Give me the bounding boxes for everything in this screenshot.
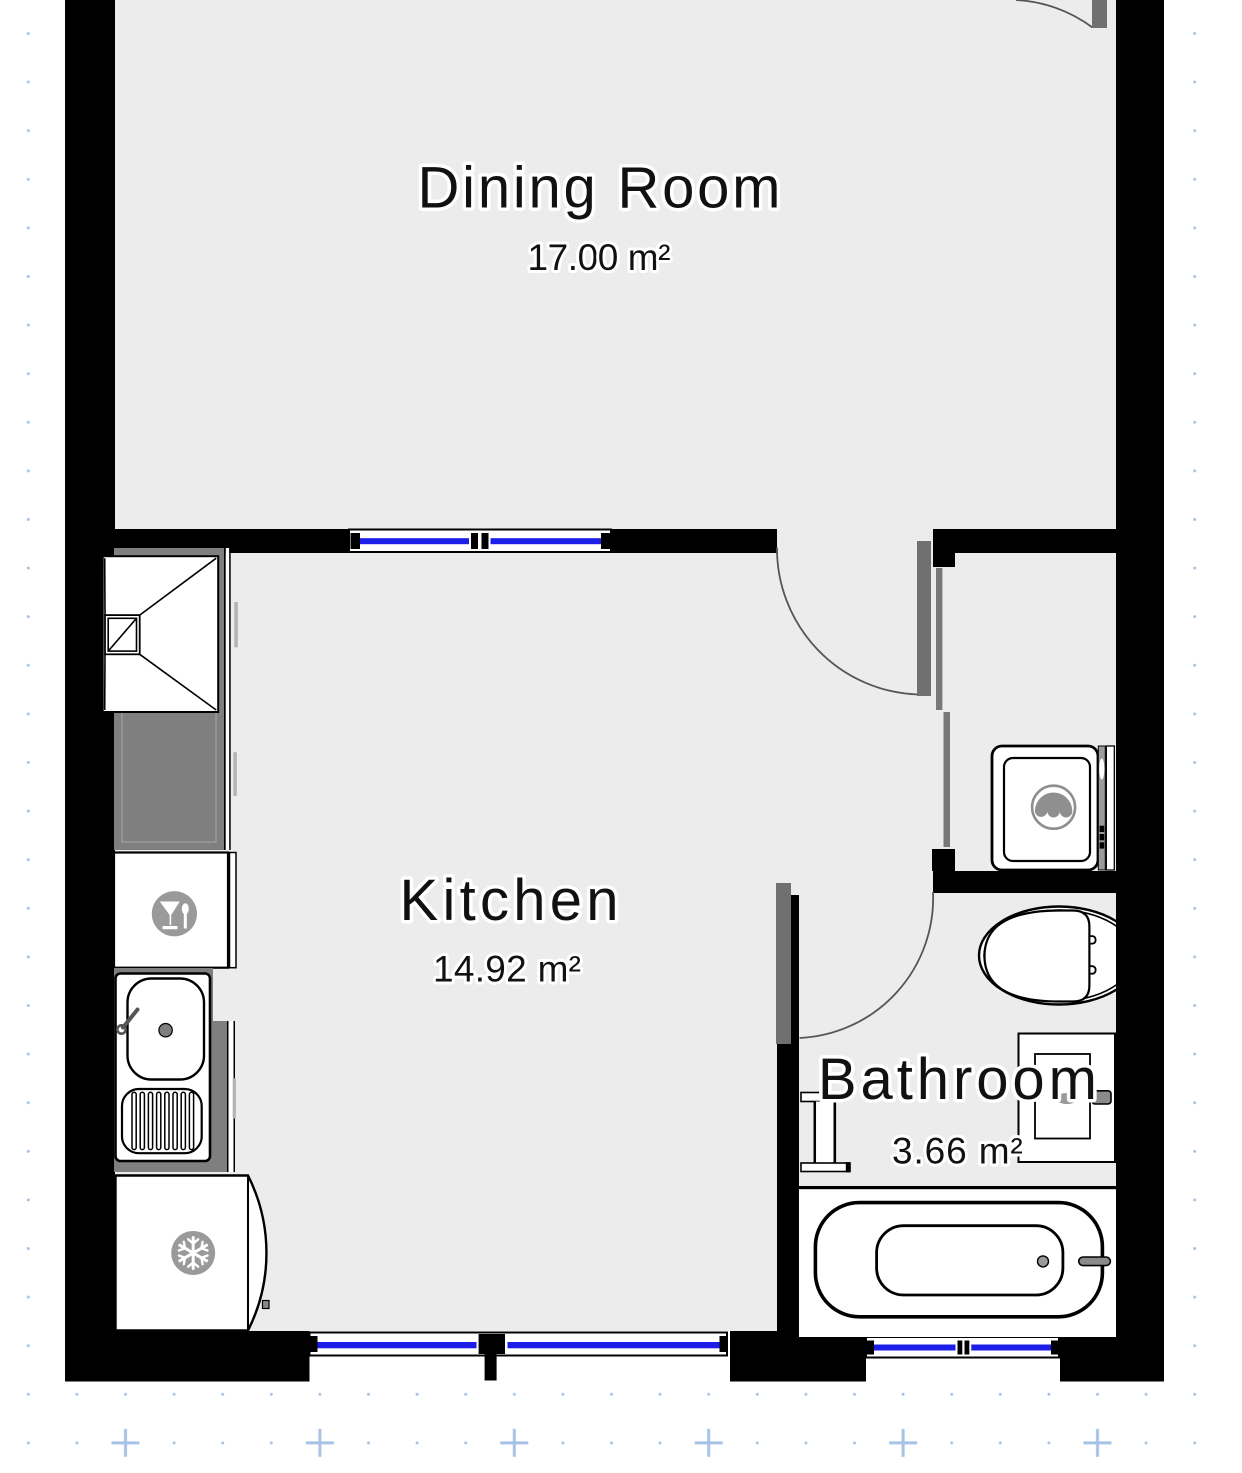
svg-text:Dining Room: Dining Room <box>418 155 781 220</box>
svg-text:14.92 m²: 14.92 m² <box>433 948 581 989</box>
svg-text:3.66 m²: 3.66 m² <box>892 1131 1023 1172</box>
svg-text:Bathroom: Bathroom <box>818 1047 1097 1112</box>
svg-text:17.00 m²: 17.00 m² <box>528 237 671 278</box>
